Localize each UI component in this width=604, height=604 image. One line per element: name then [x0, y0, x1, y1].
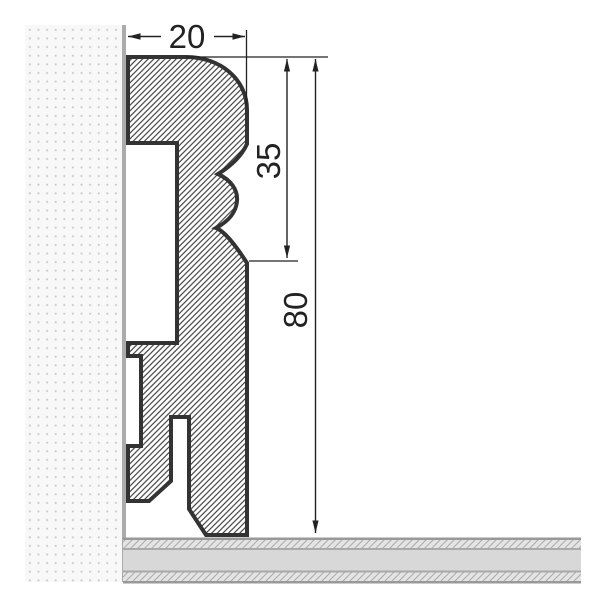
floor-bottom-line [123, 581, 581, 584]
technical-drawing: 20 35 80 [0, 0, 604, 604]
floor-core-layer [123, 550, 581, 571]
floor-lower-layer [123, 573, 581, 582]
wall-surface [25, 25, 122, 582]
floor-separator-line-2 [123, 571, 581, 573]
dim-upper-height: 35 [249, 59, 298, 261]
floor-separator-line-1 [123, 548, 581, 550]
dim-upper-height-label: 35 [250, 143, 287, 180]
dim-width-label: 20 [169, 18, 206, 55]
floor-upper-layer [123, 540, 581, 548]
wall [25, 25, 126, 582]
dim-total-height-arrow-down-icon [312, 521, 318, 534]
drawing-canvas: 20 35 80 [0, 0, 604, 604]
floor-top-line [123, 538, 581, 541]
dim-upper-height-arrow-down-icon [284, 246, 290, 259]
dim-upper-height-arrow-up-icon [284, 59, 290, 72]
dim-width-arrow-left-icon [128, 33, 141, 39]
skirting-profile [128, 57, 247, 535]
dim-total-height-label: 80 [277, 292, 314, 329]
floor [123, 538, 581, 584]
dim-total-height: 80 [277, 59, 319, 533]
dim-total-height-arrow-up-icon [312, 59, 318, 72]
dim-width-arrow-right-icon [233, 33, 246, 39]
wall-edge [122, 25, 126, 582]
